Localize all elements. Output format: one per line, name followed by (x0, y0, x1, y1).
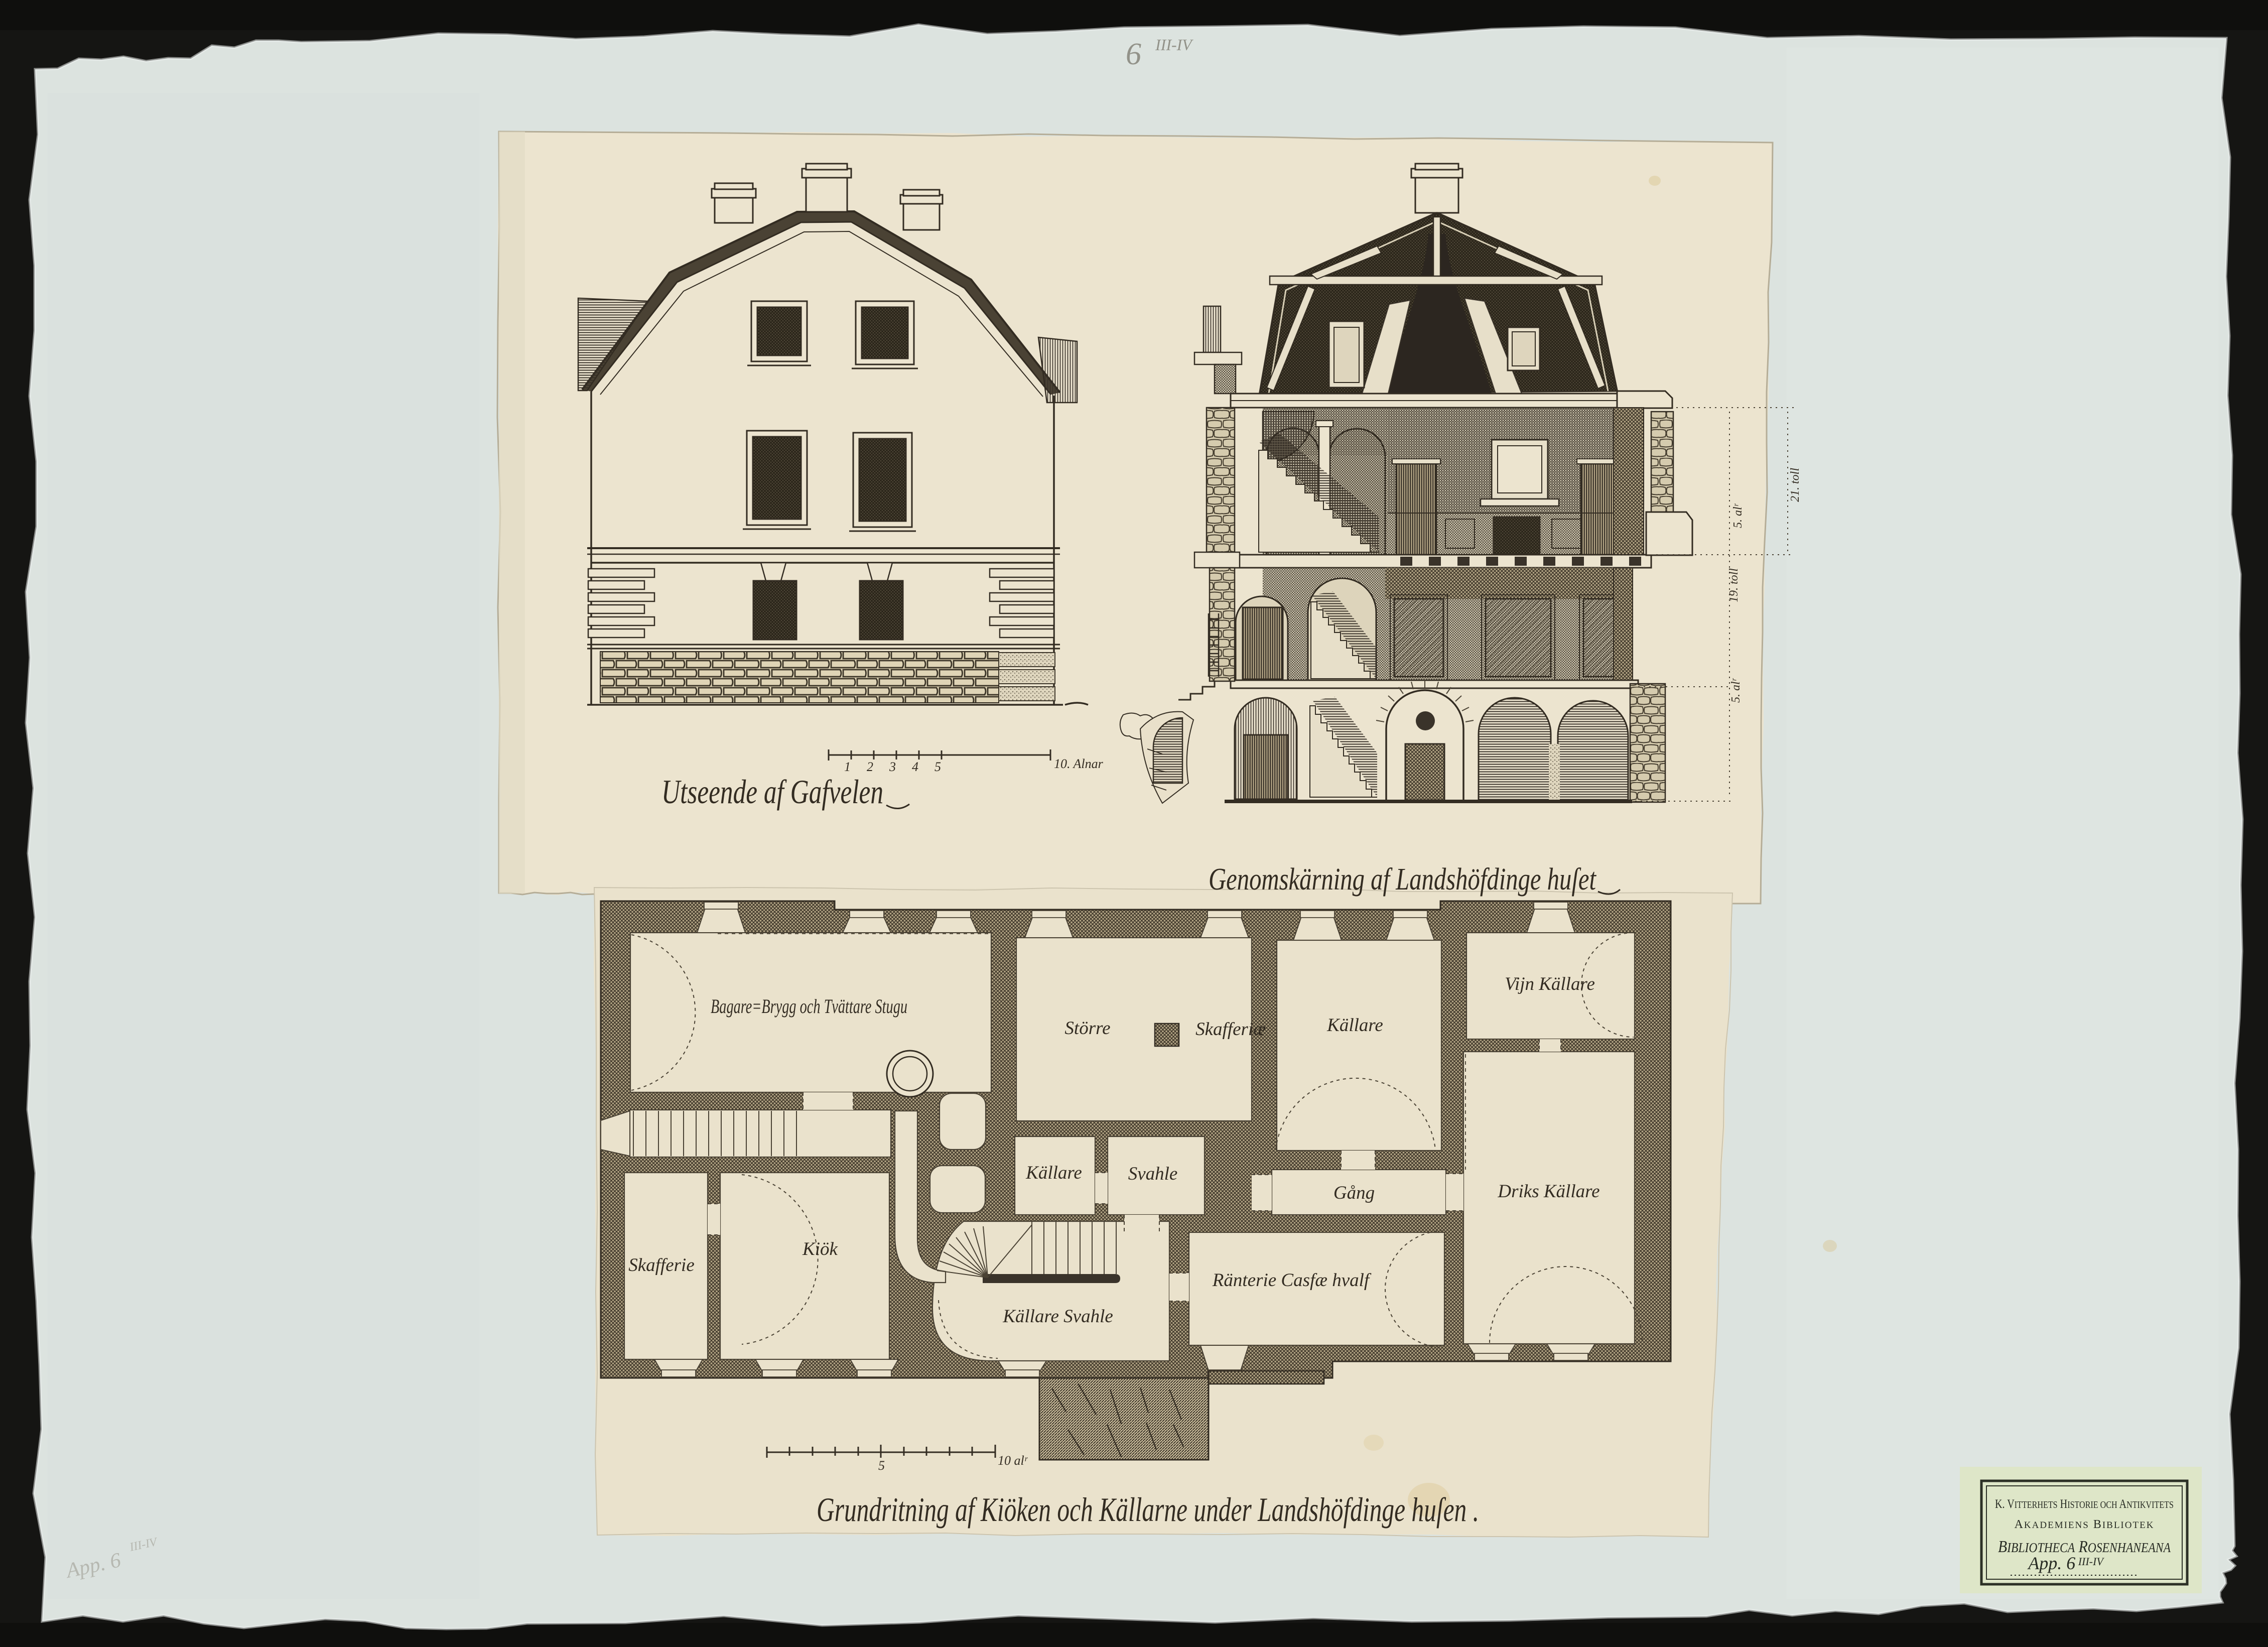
svg-text:Större: Större (1064, 1018, 1110, 1039)
svg-text:5. alʳ: 5. alʳ (1731, 503, 1745, 528)
svg-text:Svahle: Svahle (1128, 1164, 1178, 1184)
svg-text:19. toll: 19. toll (1727, 568, 1741, 602)
svg-text:Grundritning af Kiöken och Käl: Grundritning af Kiöken och Källarne unde… (817, 1490, 1479, 1529)
svg-text:10. Alnar: 10. Alnar (1054, 756, 1104, 771)
svg-text:Ränterie Casfæ hvalf: Ränterie Casfæ hvalf (1212, 1270, 1372, 1291)
svg-text:3: 3 (889, 759, 896, 774)
svg-text:Skafferie: Skafferie (628, 1255, 695, 1276)
svg-text:5: 5 (935, 759, 941, 774)
svg-text:Utseende af Gafvelen: Utseende af Gafvelen (661, 773, 883, 811)
svg-text:1: 1 (844, 759, 851, 774)
svg-text:4: 4 (912, 759, 918, 774)
svg-text:10 alʳ: 10 alʳ (998, 1453, 1028, 1468)
svg-text:5. alʳ: 5. alʳ (1729, 678, 1743, 703)
svg-text:Vijn Källare: Vijn Källare (1505, 974, 1595, 994)
svg-text:21. toll: 21. toll (1789, 468, 1802, 502)
svg-text:Källare: Källare (1326, 1015, 1383, 1036)
svg-text:Genomskärning af Landshöfdinge: Genomskärning af Landshöfdinge huſet (1209, 862, 1596, 897)
svg-text:Driks Källare: Driks Källare (1497, 1181, 1599, 1202)
svg-text:Källare Svahle: Källare Svahle (1002, 1306, 1113, 1327)
svg-text:5: 5 (878, 1458, 885, 1473)
svg-text:BIBLIOTHECA ROSENHANEANA: BIBLIOTHECA ROSENHANEANA (1998, 1538, 2171, 1556)
svg-text:III-IV: III-IV (1155, 36, 1193, 54)
svg-text:Källare: Källare (1025, 1163, 1082, 1183)
svg-text:2: 2 (867, 759, 873, 774)
svg-text:K. VITTERHETS HISTORIE OCH ANT: K. VITTERHETS HISTORIE OCH ANTIKVITETS (1995, 1497, 2174, 1511)
svg-text:AKADEMIENS BIBLIOTEK: AKADEMIENS BIBLIOTEK (2015, 1518, 2155, 1531)
svg-text:Bagare=Brygg och Tvättare Stug: Bagare=Brygg och Tvättare Stugu (711, 995, 907, 1018)
svg-text:6: 6 (1126, 37, 1141, 71)
svg-text:Skafferiæ: Skafferiæ (1195, 1019, 1266, 1040)
svg-text:Gång: Gång (1333, 1183, 1375, 1203)
svg-text:Kiök: Kiök (802, 1239, 838, 1259)
